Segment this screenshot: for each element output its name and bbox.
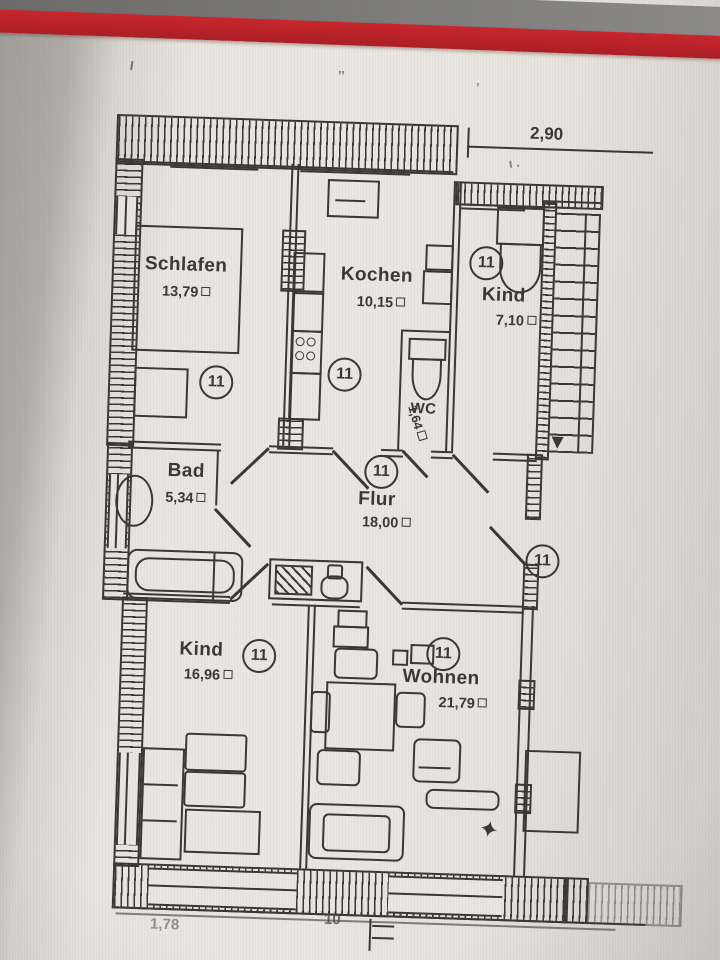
door-kind-top bbox=[452, 454, 489, 494]
armchair bbox=[412, 738, 461, 784]
bathtub-inner bbox=[134, 557, 235, 594]
wall-mid bbox=[128, 447, 221, 452]
wall-bottom-faint bbox=[585, 882, 682, 927]
unit-marker-flur: 11 bbox=[364, 454, 399, 489]
sideboard bbox=[425, 789, 500, 811]
dimension-bottom-left: 1,78 bbox=[150, 915, 180, 933]
floorplan-drawing: Schlafen 13,79 11 Kochen 10,15 11 WC 1,6… bbox=[86, 106, 624, 925]
kitchen-sink-unit bbox=[327, 179, 380, 219]
room-area-bad: 5,34 bbox=[151, 489, 219, 507]
door-wc bbox=[402, 450, 428, 478]
wall-mid bbox=[381, 449, 403, 452]
unit-marker-entry: 11 bbox=[525, 544, 560, 579]
room-label-kind-bottom: Kind bbox=[166, 638, 237, 662]
sofa-cushions bbox=[322, 813, 391, 853]
dimension-tick bbox=[467, 128, 470, 158]
kitchen-counter bbox=[291, 292, 324, 333]
kitchen-stove bbox=[290, 330, 323, 375]
star-symbol: ✦ bbox=[476, 817, 501, 845]
floorplan-photo: I ’’ ’ 1,78 10 bbox=[0, 0, 720, 960]
wall-mid bbox=[493, 459, 537, 462]
room-area-wohnen: 21,79 bbox=[422, 694, 502, 713]
flur-wardrobe-hatch bbox=[274, 564, 313, 595]
room-label-flur: Flur bbox=[339, 488, 415, 512]
room-label-schlafen: Schlafen bbox=[134, 253, 239, 278]
kind-top-fixture bbox=[496, 207, 545, 247]
sqm-icon bbox=[201, 287, 210, 296]
dimension-top-width: 2,90 bbox=[511, 123, 582, 145]
wall-mid bbox=[493, 453, 537, 456]
wall-mid bbox=[431, 457, 453, 460]
sqm-icon bbox=[527, 316, 536, 325]
bottom-mark bbox=[372, 937, 394, 940]
pen-tick: ’’ bbox=[338, 68, 345, 83]
toilet-bowl bbox=[411, 358, 442, 401]
stair-direction-arrow bbox=[551, 437, 563, 449]
door-schlafen bbox=[230, 448, 270, 485]
window-bottom-kind bbox=[148, 867, 297, 910]
unit-marker-kind-bottom: 11 bbox=[242, 638, 277, 673]
room-label-bad: Bad bbox=[156, 459, 217, 483]
room-area-kochen: 10,15 bbox=[336, 293, 426, 312]
door-wohnen bbox=[366, 566, 403, 606]
dining-table bbox=[324, 681, 396, 751]
sqm-icon bbox=[396, 297, 405, 306]
pen-tick: I bbox=[129, 58, 135, 73]
wc-wall bbox=[401, 330, 451, 334]
room-label-wohnen: Wohnen bbox=[393, 665, 489, 690]
wall-right-line bbox=[513, 606, 524, 876]
chair bbox=[333, 647, 378, 679]
unit-marker-kochen: 11 bbox=[327, 357, 362, 392]
room-label-kochen: Kochen bbox=[322, 263, 433, 289]
chair bbox=[395, 692, 426, 729]
room-area-flur: 18,00 bbox=[343, 514, 428, 533]
wall-mid bbox=[269, 451, 333, 455]
wohnen-chair-back bbox=[410, 644, 435, 665]
pen-tick: ’ bbox=[476, 80, 480, 95]
wall-lower bbox=[402, 608, 524, 614]
kind-wardrobe bbox=[139, 747, 185, 860]
room-area-kind-bottom: 16,96 bbox=[165, 666, 250, 685]
outside-landing bbox=[522, 750, 581, 834]
bottom-mark bbox=[372, 925, 394, 928]
kitchen-cabinet bbox=[292, 252, 325, 293]
room-area-schlafen: 13,79 bbox=[146, 283, 226, 302]
sqm-icon bbox=[196, 493, 205, 502]
schlafen-dresser bbox=[133, 367, 189, 419]
sqm-icon bbox=[223, 670, 232, 679]
bad-washbasin bbox=[114, 474, 154, 527]
door-entry bbox=[489, 526, 526, 566]
kind-desk2 bbox=[183, 771, 246, 809]
kind-bed bbox=[184, 809, 261, 855]
sqm-icon bbox=[417, 430, 428, 441]
kitchen-counter bbox=[288, 372, 322, 421]
wall-right-line bbox=[523, 606, 534, 876]
unit-marker-schlafen: 11 bbox=[199, 365, 234, 400]
sqm-icon bbox=[401, 518, 410, 527]
wohnen-stool bbox=[332, 625, 369, 648]
kitchen-fixture bbox=[425, 244, 454, 271]
wohnen-chair-back bbox=[392, 649, 409, 666]
wall-lower bbox=[402, 602, 524, 608]
window-bottom-wohnen bbox=[388, 875, 503, 917]
kind-desk bbox=[184, 733, 247, 773]
sqm-icon bbox=[478, 698, 487, 707]
chair bbox=[310, 691, 331, 734]
window-left-kind bbox=[116, 752, 141, 845]
dimension-bottom-mid: 10 bbox=[324, 911, 341, 929]
wall-mid bbox=[431, 451, 453, 454]
room-area-kind-top: 7,10 bbox=[483, 312, 548, 330]
kitchen-fixture bbox=[422, 270, 453, 305]
dimension-line bbox=[467, 146, 653, 154]
chair bbox=[316, 749, 361, 786]
door-bad bbox=[214, 508, 251, 548]
wall-right-upper bbox=[525, 454, 543, 520]
stair-treads bbox=[549, 213, 601, 454]
pen-squiggle: ι . bbox=[508, 154, 521, 170]
wall-mid bbox=[128, 441, 221, 446]
kitchen-shaft bbox=[277, 417, 304, 450]
bottom-mark bbox=[368, 919, 371, 951]
wall-right-hatch bbox=[518, 680, 536, 711]
wc-wall bbox=[397, 332, 403, 450]
vase-body bbox=[320, 575, 349, 600]
